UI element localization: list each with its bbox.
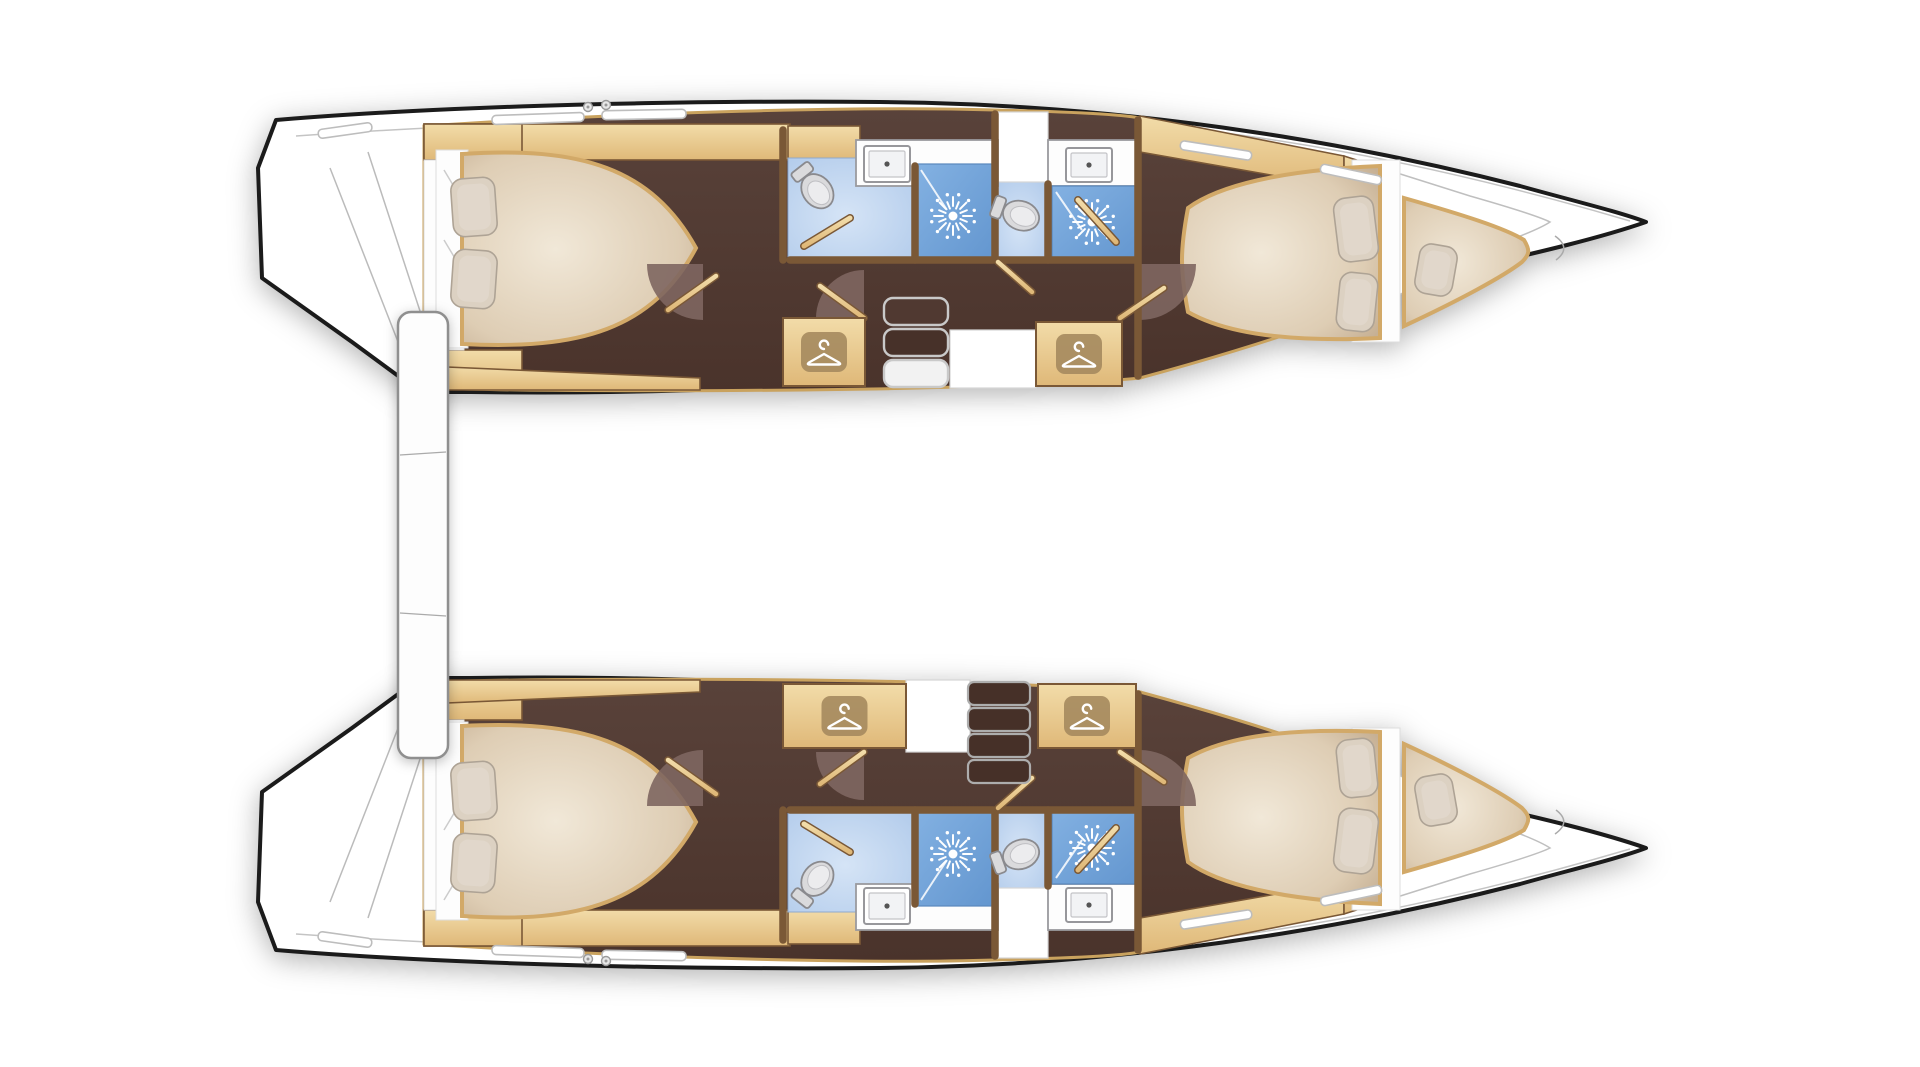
hanger-icon-bg — [822, 696, 868, 736]
shower-drop — [957, 193, 960, 196]
drawer — [968, 734, 1030, 757]
aft-head-sink — [864, 146, 910, 182]
shower-drop — [957, 236, 960, 239]
shower-drop — [1106, 205, 1109, 208]
pillow-highlight — [456, 255, 491, 303]
shower-drop — [1096, 868, 1099, 871]
shower-rose-center — [949, 850, 958, 859]
winch-center — [605, 104, 608, 107]
shower-drop — [930, 220, 933, 223]
hanging-locker-forward — [1038, 684, 1136, 748]
shower-drop — [946, 236, 949, 239]
shower-drop — [936, 199, 939, 202]
forward-head-sink — [1066, 148, 1112, 182]
shower-drop — [930, 209, 933, 212]
shower-drop — [1069, 841, 1072, 844]
aft-head-top-trim — [788, 126, 860, 160]
shower-drop — [1096, 825, 1099, 828]
aft-berth-pillow-1 — [450, 177, 498, 238]
shower-drop — [973, 220, 976, 223]
drawer — [968, 708, 1030, 731]
pillow-highlight — [456, 767, 491, 815]
shower-drop — [946, 831, 949, 834]
faucet-dot — [1086, 902, 1091, 907]
step — [884, 329, 948, 356]
shower-drop — [936, 868, 939, 871]
faucet-dot — [884, 161, 889, 166]
shower-drop — [946, 874, 949, 877]
shower-drop — [1106, 862, 1109, 865]
shower-drop — [1069, 852, 1072, 855]
bow-berth-pillow — [1413, 242, 1459, 298]
shower-drop — [1069, 215, 1072, 218]
hanger-icon-bg — [1064, 696, 1110, 736]
shower-drop — [973, 847, 976, 850]
shower-drop — [1096, 242, 1099, 245]
shower-drop — [967, 230, 970, 233]
aft-berth-pillow-2 — [450, 249, 498, 310]
aft-head-sink — [864, 888, 910, 924]
fwd-berth-pillow-2 — [1335, 737, 1379, 799]
shower-drop — [946, 193, 949, 196]
hanging-locker-forward — [1036, 322, 1122, 386]
shower-drop — [1075, 831, 1078, 834]
hanger-icon-bg — [801, 332, 847, 372]
shower-drop — [967, 868, 970, 871]
pillow-highlight — [456, 839, 491, 887]
shower-rose-icon — [930, 831, 976, 877]
catamaran-floorplan — [0, 0, 1920, 1067]
shower-drop — [957, 874, 960, 877]
shower-rose-icon — [930, 193, 976, 239]
winch-center — [605, 960, 608, 963]
shower-drop — [973, 858, 976, 861]
shower-drop — [1112, 852, 1115, 855]
shower-drop — [1112, 226, 1115, 229]
faucet-dot — [1086, 162, 1091, 167]
deck-hatch — [602, 109, 686, 119]
fwd-berth-pillow-1 — [1332, 807, 1380, 875]
bow-berth-pillow — [1413, 772, 1459, 828]
shower-drop — [1085, 825, 1088, 828]
hull-bottom — [258, 678, 1646, 969]
hanging-locker-aft — [783, 318, 865, 386]
entry-landing — [995, 888, 1048, 958]
pillow-highlight — [456, 183, 491, 231]
aft-berth-pillow-2 — [450, 761, 498, 822]
shower-drop — [1112, 215, 1115, 218]
shower-drop — [1075, 236, 1078, 239]
fwd-berth-pillow-2 — [1335, 271, 1379, 333]
hull-top — [258, 101, 1646, 393]
winch-center — [587, 958, 590, 961]
step — [884, 360, 948, 387]
shower-drop — [1069, 226, 1072, 229]
aft-crossbeam — [398, 312, 448, 758]
shower-drop — [973, 209, 976, 212]
step — [884, 298, 948, 325]
deck-hatch — [602, 950, 686, 960]
drawer — [968, 760, 1030, 783]
shower-drop — [957, 831, 960, 834]
aft-head-shower — [917, 164, 993, 262]
pillow-highlight — [1342, 278, 1373, 326]
aft-crossbeam-bar — [398, 312, 448, 758]
forward-head-sink — [1066, 888, 1112, 922]
aft-berth-pillow-1 — [450, 833, 498, 894]
aft-head-shower — [917, 808, 993, 906]
shower-drop — [930, 858, 933, 861]
shower-drop — [967, 837, 970, 840]
shower-rose-center — [949, 212, 958, 221]
shower-drop — [936, 230, 939, 233]
shower-drop — [967, 199, 970, 202]
winch-center — [587, 106, 590, 109]
aft-head-top-trim — [788, 910, 860, 944]
companionway-landing — [906, 680, 970, 752]
hanging-locker-aft — [783, 684, 906, 748]
faucet-dot — [884, 903, 889, 908]
shower-drop — [936, 837, 939, 840]
entry-landing — [995, 112, 1048, 182]
companionway-steps — [884, 298, 948, 387]
drawer — [968, 682, 1030, 705]
shower-drop — [1096, 199, 1099, 202]
shower-drop — [930, 847, 933, 850]
shower-drop — [1112, 841, 1115, 844]
hanger-icon-bg — [1056, 334, 1102, 374]
fwd-berth-pillow-1 — [1332, 195, 1380, 263]
pillow-highlight — [1342, 744, 1373, 792]
shower-drop — [1085, 242, 1088, 245]
companionway-landing — [950, 330, 1036, 388]
